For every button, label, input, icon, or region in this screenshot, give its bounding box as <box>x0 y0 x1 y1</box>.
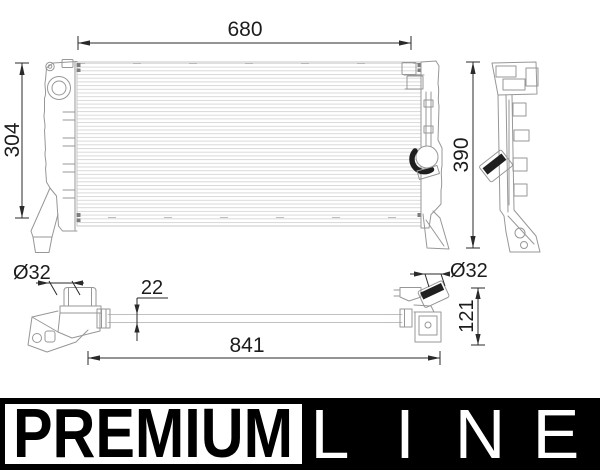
dimension-304: 304 <box>1 63 29 218</box>
bottom-right-fitting <box>394 280 450 342</box>
side-view <box>479 62 540 252</box>
left-tank <box>31 60 77 253</box>
line-letter-i: I <box>395 395 414 472</box>
dim-304-label: 304 <box>1 122 24 157</box>
side-view-cap <box>479 150 513 183</box>
dim-22-label: 22 <box>141 277 163 299</box>
front-view <box>31 60 449 253</box>
dimension-680: 680 <box>78 18 411 50</box>
dimension-841: 841 <box>88 334 440 365</box>
radiator-drawing-canvas: 680 304 390 Ø32 22 841 <box>0 0 600 472</box>
left-mounting-foot <box>31 188 58 237</box>
dimension-22: 22 <box>134 277 168 341</box>
filler-cap <box>416 146 438 168</box>
line-letter-n: N <box>455 395 506 472</box>
dim-diameter-left-label: Ø32 <box>13 262 51 284</box>
dim-121-label: 121 <box>456 299 478 332</box>
dim-841-label: 841 <box>229 334 264 357</box>
dim-390-label: 390 <box>450 137 473 172</box>
dimension-390: 390 <box>450 62 480 248</box>
dimension-121: 121 <box>456 288 485 345</box>
right-mounting-foot <box>423 211 449 249</box>
line-letter-l: L <box>311 395 350 472</box>
technical-drawing: 680 304 390 Ø32 22 841 <box>0 0 600 472</box>
dim-680-label: 680 <box>227 18 262 41</box>
line-letter-e: E <box>533 395 580 472</box>
premium-label: PREMIUM <box>13 394 293 472</box>
radiator-core <box>77 62 421 226</box>
dimension-diameter-left: Ø32 <box>13 262 84 295</box>
left-port-circle <box>48 77 71 100</box>
premium-line-banner: PREMIUM L I N E <box>0 394 600 472</box>
bottom-left-fitting <box>28 288 101 353</box>
dim-diameter-right-label: Ø32 <box>450 260 488 282</box>
dimension-diameter-right: Ø32 <box>410 260 488 287</box>
